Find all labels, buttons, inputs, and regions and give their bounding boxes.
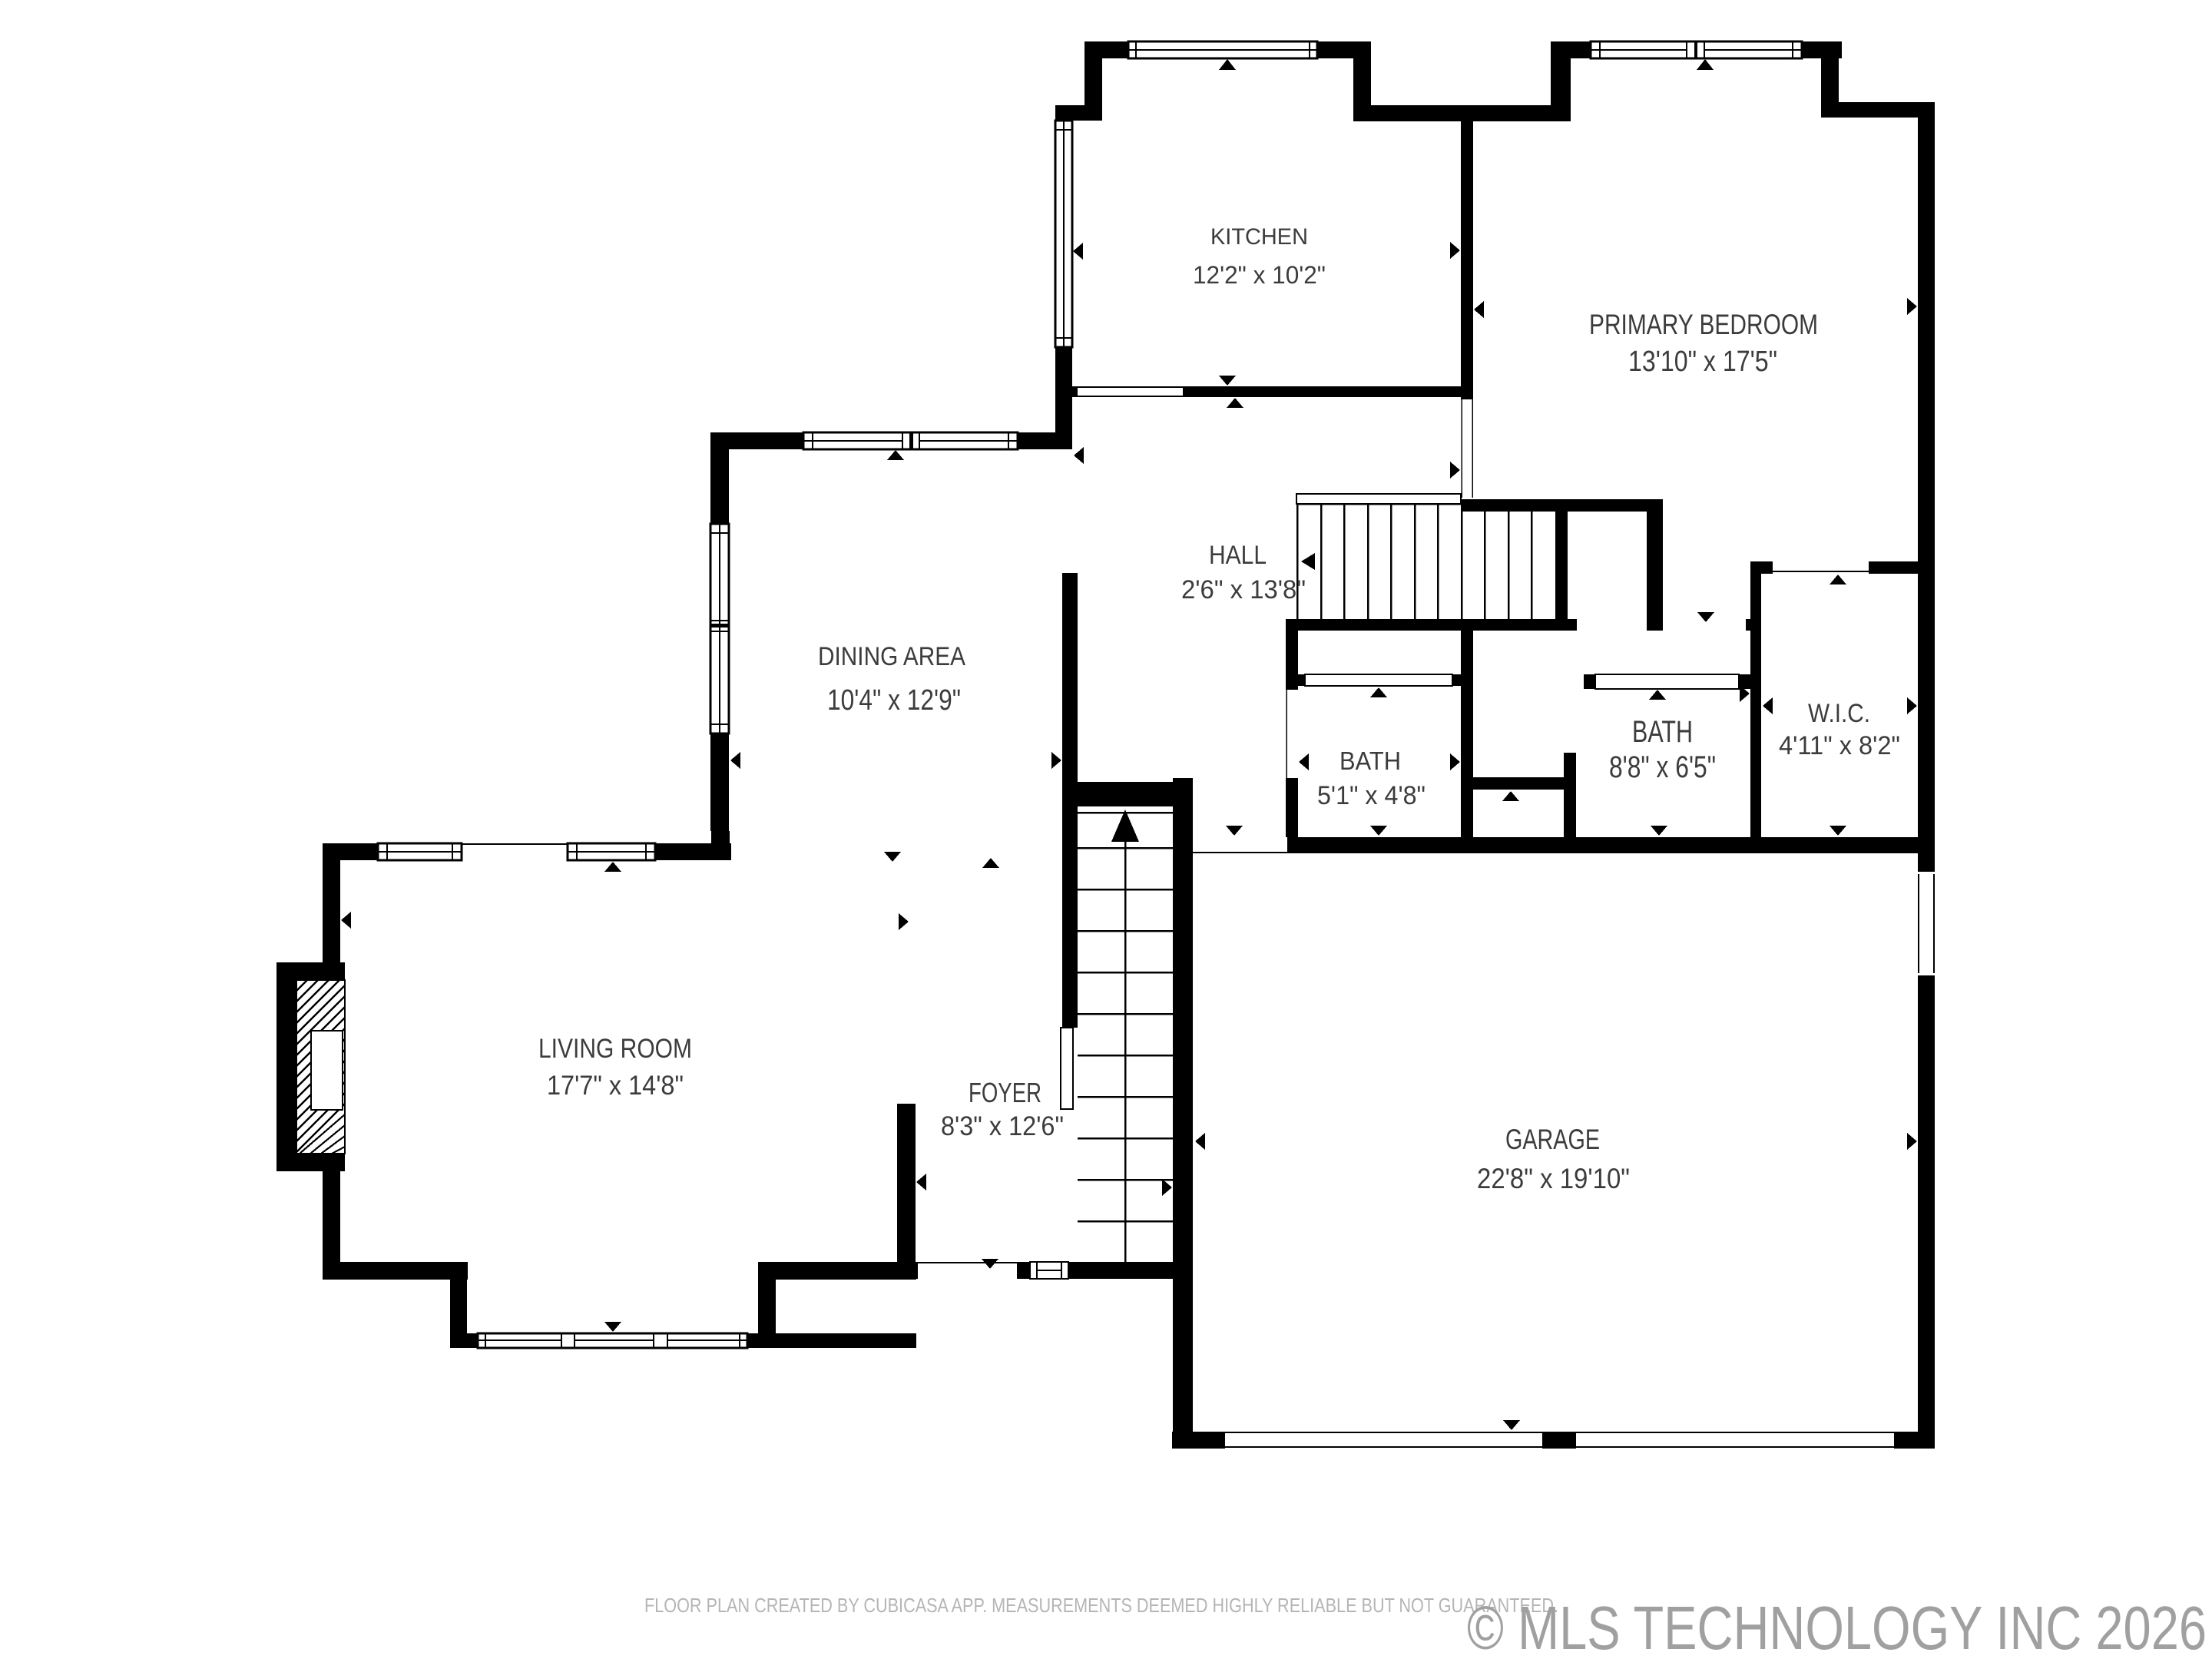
svg-text:DINING AREA: DINING AREA [818,642,965,671]
svg-text:8'3" x 12'6": 8'3" x 12'6" [941,1111,1064,1141]
svg-text:W.I.C.: W.I.C. [1808,699,1870,728]
svg-text:© MLS TECHNOLOGY INC 2026: © MLS TECHNOLOGY INC 2026 [1467,1594,2207,1659]
svg-text:HALL: HALL [1209,541,1267,570]
svg-text:FOYER: FOYER [969,1077,1041,1108]
svg-text:17'7" x 14'8": 17'7" x 14'8" [547,1071,684,1101]
svg-text:FLOOR PLAN CREATED BY CUBICASA: FLOOR PLAN CREATED BY CUBICASA APP. MEAS… [644,1594,1558,1617]
svg-text:13'10" x 17'5": 13'10" x 17'5" [1628,346,1777,378]
svg-text:22'8" x 19'10": 22'8" x 19'10" [1477,1163,1630,1194]
svg-text:4'11" x 8'2": 4'11" x 8'2" [1779,731,1900,760]
svg-text:10'4" x 12'9": 10'4" x 12'9" [827,684,961,717]
svg-text:BATH: BATH [1339,747,1401,775]
svg-text:BATH: BATH [1632,715,1693,749]
svg-text:5'1" x 4'8": 5'1" x 4'8" [1317,781,1426,810]
svg-text:KITCHEN: KITCHEN [1210,224,1308,250]
svg-text:LIVING ROOM: LIVING ROOM [538,1034,692,1064]
svg-text:GARAGE: GARAGE [1505,1124,1600,1155]
svg-text:8'8" x 6'5": 8'8" x 6'5" [1609,750,1716,784]
svg-text:12'2" x 10'2": 12'2" x 10'2" [1193,261,1326,289]
svg-text:2'6" x 13'8": 2'6" x 13'8" [1181,575,1306,604]
svg-text:PRIMARY BEDROOM: PRIMARY BEDROOM [1589,309,1818,340]
